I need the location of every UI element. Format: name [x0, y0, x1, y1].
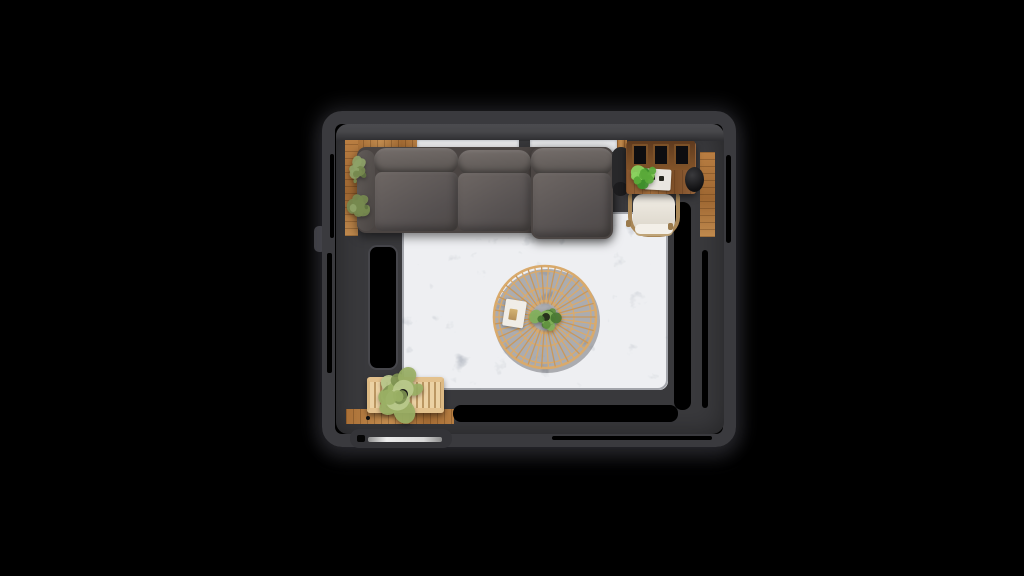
desk-pad [643, 168, 671, 190]
wall-gap-bottom [453, 405, 678, 422]
top-wall-band [336, 124, 724, 141]
sofa-back-cushion [374, 148, 458, 174]
sofa-seat-cushion [375, 172, 458, 231]
monitor-frame [674, 144, 690, 166]
floor-peg [366, 416, 370, 420]
left-wall-opening [368, 245, 398, 370]
monitor-frame [653, 144, 669, 166]
sofa-back-cushion [531, 148, 613, 175]
sofa-armrest [357, 150, 375, 231]
wall-slot-right-upper [726, 155, 731, 243]
monitor-frame [632, 144, 648, 166]
sofa-chaise-cushion [533, 173, 611, 237]
sofa-back-cushion [458, 150, 531, 175]
chair-leg [626, 220, 631, 227]
speaker [685, 167, 704, 192]
chair-leg [668, 223, 673, 230]
sofa-seat-cushion [458, 173, 531, 231]
wall-slot-left-lower [327, 253, 332, 373]
wall-gap-bottom-thin [552, 436, 712, 440]
door [368, 437, 442, 442]
wall-slot-right-mid [702, 250, 708, 408]
wall-slot-left-upper [330, 154, 334, 238]
wood-panel-right [700, 152, 715, 237]
magazine-cover-art [508, 308, 518, 320]
bench [367, 377, 444, 413]
pad-mark [650, 175, 655, 180]
door-notch [357, 435, 365, 442]
room-render [0, 0, 1024, 576]
pad-mark [659, 176, 664, 181]
wall-gap-right [674, 202, 691, 410]
